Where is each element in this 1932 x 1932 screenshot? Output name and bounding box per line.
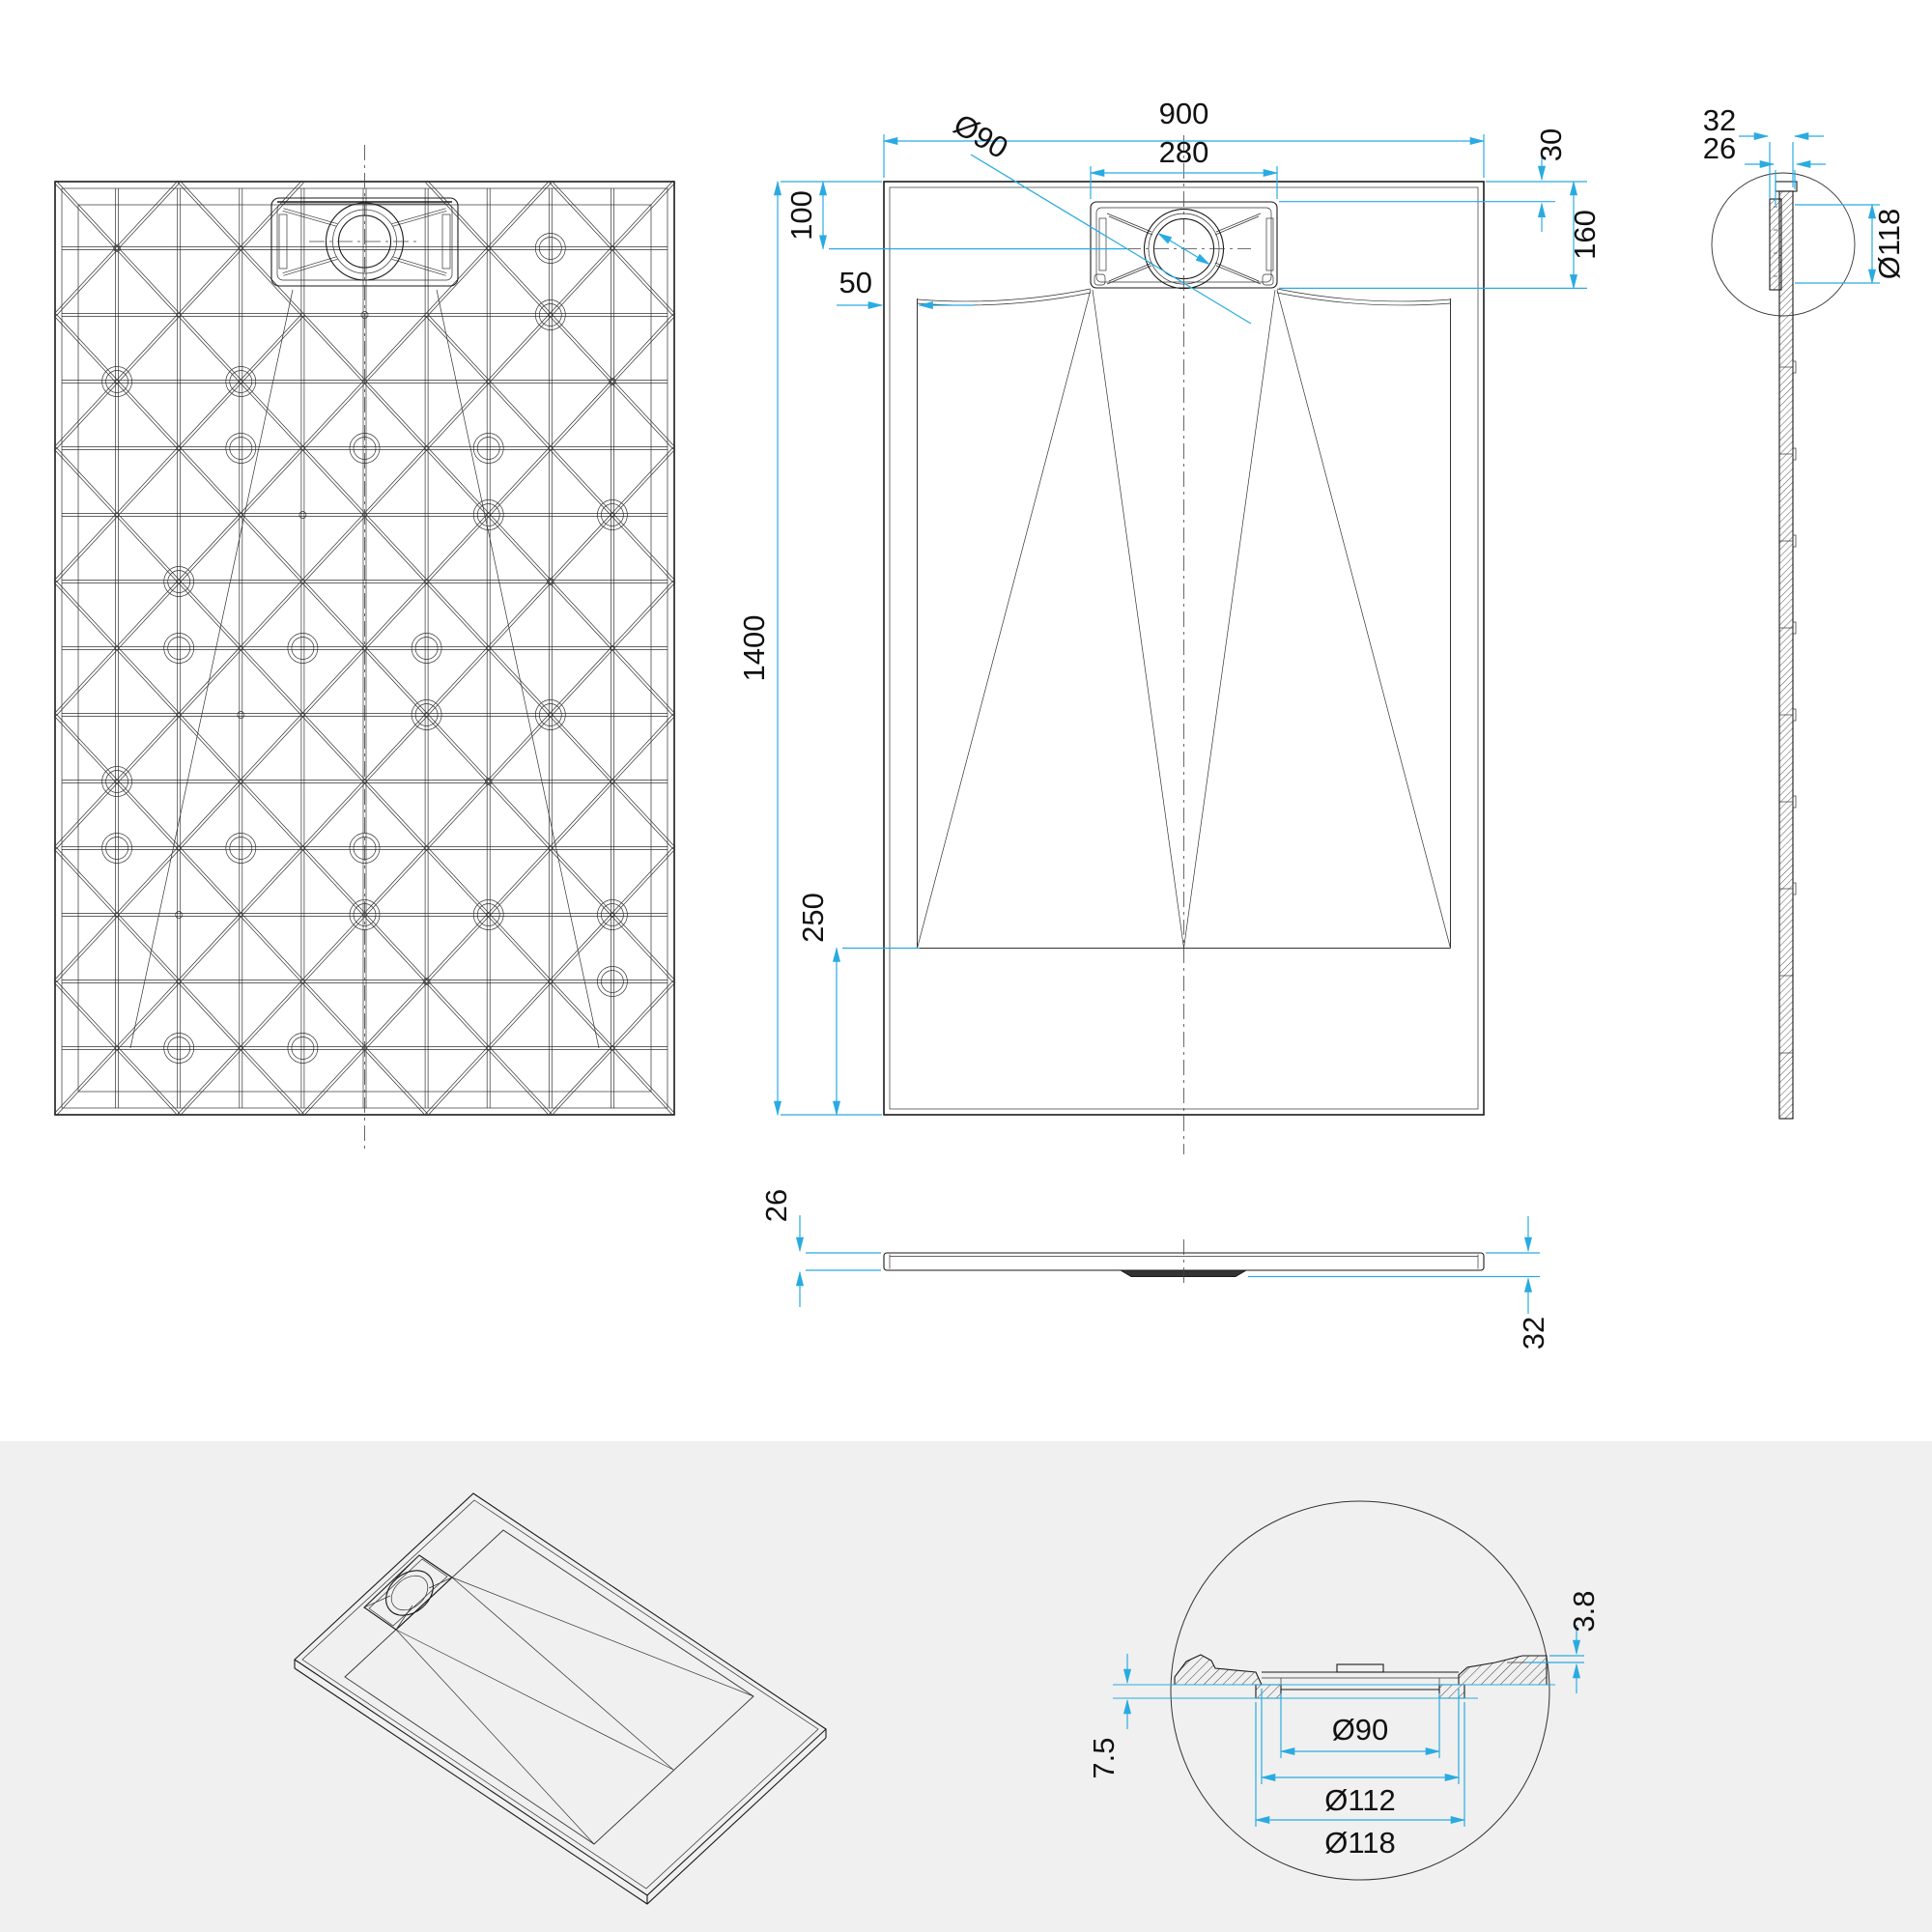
dim-label-280: 280 [1159, 135, 1209, 169]
dim-label-900: 900 [1159, 97, 1209, 130]
dim-label-30: 30 [1534, 128, 1568, 161]
technical-drawing-sheet: 900 280 Ø90 100 1400 250 [0, 0, 1932, 1932]
side-plate-section [1779, 191, 1793, 1119]
dim-label-250: 250 [796, 893, 830, 943]
dim-label-100: 100 [784, 190, 818, 241]
dim-label-front-26: 26 [759, 1189, 793, 1222]
dim-label-side-26: 26 [1703, 131, 1736, 165]
dim-label-50: 50 [839, 266, 872, 299]
dim-label-dia90: Ø90 [1332, 1713, 1389, 1747]
dim-label-side-dia118: Ø118 [1872, 209, 1906, 280]
shower-tray-drawing: 900 280 Ø90 100 1400 250 [0, 0, 1932, 1932]
dim-label-1400: 1400 [737, 615, 771, 682]
dim-label-3.8: 3.8 [1567, 1590, 1601, 1632]
dim-label-front-32: 32 [1517, 1317, 1550, 1350]
dim-label-dia118: Ø118 [1324, 1826, 1396, 1860]
dim-label-160: 160 [1568, 210, 1602, 260]
dim-label-dia112: Ø112 [1324, 1783, 1396, 1817]
front-drain-bump [1121, 1270, 1246, 1277]
lower-panel-background [0, 1441, 1932, 1932]
dim-label-7.5: 7.5 [1087, 1737, 1121, 1778]
